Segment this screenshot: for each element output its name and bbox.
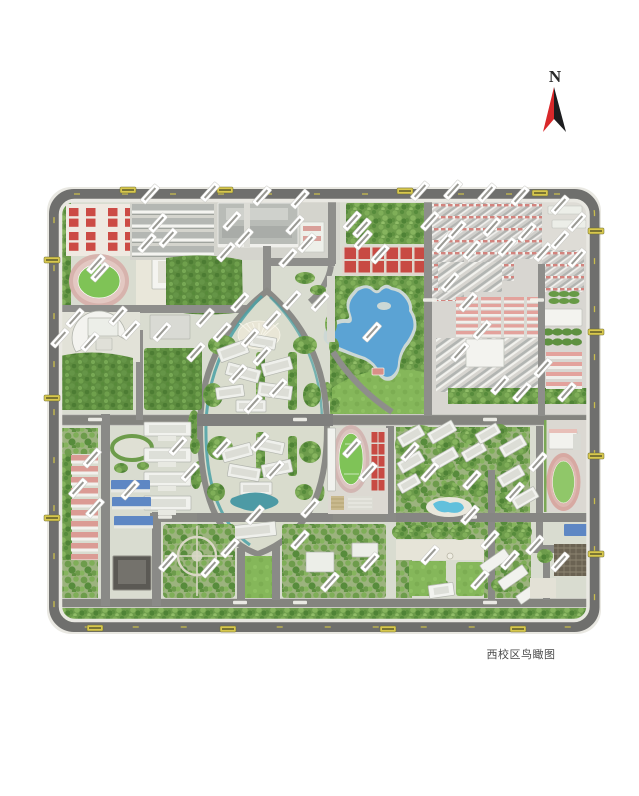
svg-text:西校区鸟瞰图: 西校区鸟瞰图	[487, 647, 556, 661]
svg-text:N: N	[549, 67, 562, 86]
